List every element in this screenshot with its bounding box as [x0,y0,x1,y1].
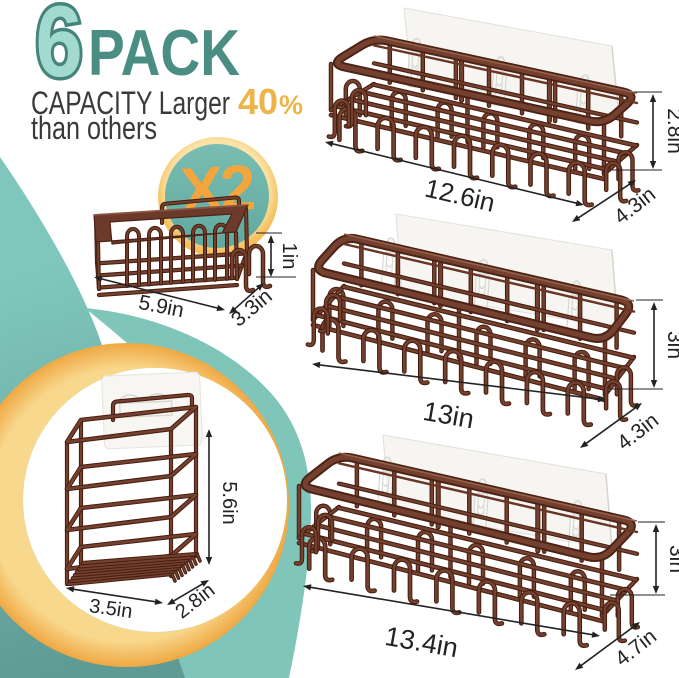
svg-text:3in: 3in [663,331,679,359]
svg-text:than others: than others [31,110,157,146]
svg-text:3in: 3in [665,545,679,573]
svg-text:PACK: PACK [88,17,240,89]
svg-text:5.6in: 5.6in [218,481,240,524]
svg-text:1in: 1in [278,243,300,270]
svg-text:2.8in: 2.8in [663,108,679,154]
svg-text:%: % [279,90,303,120]
svg-text:6: 6 [36,0,83,98]
svg-text:40: 40 [238,81,278,122]
